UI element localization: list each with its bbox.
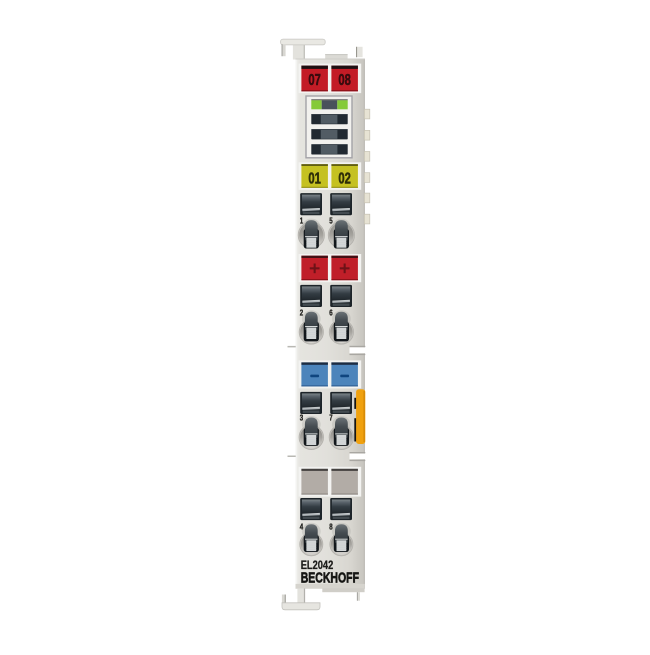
svg-text:07: 07	[308, 71, 320, 88]
svg-text:BECKHOFF: BECKHOFF	[301, 569, 359, 586]
svg-text:01: 01	[308, 170, 321, 187]
svg-text:5: 5	[329, 216, 332, 226]
svg-text:08: 08	[338, 71, 351, 88]
svg-text:02: 02	[338, 170, 351, 187]
svg-text:6: 6	[329, 307, 332, 317]
svg-text:3: 3	[300, 412, 303, 422]
svg-text:7: 7	[329, 412, 332, 422]
